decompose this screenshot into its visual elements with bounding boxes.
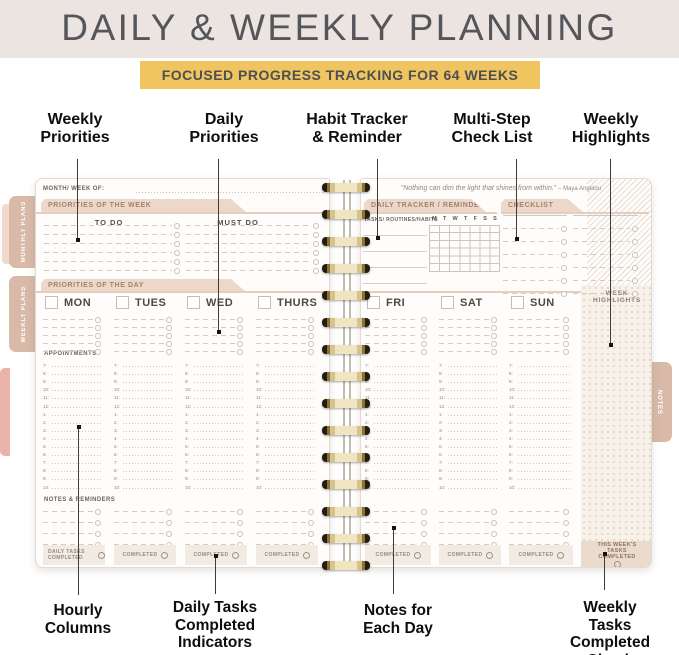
checkbox-circle-icon xyxy=(561,239,567,245)
checkbox-circle-icon xyxy=(308,341,314,347)
hour-label: 6: xyxy=(509,452,518,457)
checkbox-circle-icon xyxy=(232,552,239,559)
checkbox-circle-icon xyxy=(161,552,168,559)
week-letter: S xyxy=(483,216,487,222)
hour-row: 5: xyxy=(43,442,103,449)
hour-label: 10: xyxy=(439,485,448,490)
notes-row xyxy=(185,509,243,514)
checkbox-circle-icon xyxy=(308,325,314,331)
callout-multi-step: Multi-Step Check List xyxy=(452,111,533,147)
checkbox-circle-icon xyxy=(303,552,310,559)
day-priority-row xyxy=(114,317,172,322)
checkbox-circle-icon xyxy=(237,509,243,515)
notes-row xyxy=(439,520,497,525)
checkbox-circle-icon xyxy=(237,325,243,331)
hour-row: 9: xyxy=(509,474,571,481)
hour-label: 8: xyxy=(114,371,123,376)
hour-label: 7: xyxy=(43,363,52,368)
spiral-coil xyxy=(322,534,370,543)
spiral-binding xyxy=(322,178,370,568)
todo-row xyxy=(44,250,180,255)
hour-row: 8: xyxy=(114,466,174,473)
hour-row: 7: xyxy=(439,361,499,368)
tracker-task-line xyxy=(363,283,427,284)
tracker-task-line xyxy=(363,251,427,252)
hour-row: 10: xyxy=(439,483,499,490)
hour-label: 9: xyxy=(439,476,448,481)
daily-completed-box: DAILY TASKS COMPLETED xyxy=(43,545,105,565)
hour-row: 8: xyxy=(185,369,245,376)
hour-label: 12: xyxy=(256,404,265,409)
notes-row xyxy=(185,520,243,525)
hour-label: 7: xyxy=(43,460,52,465)
checkbox-circle-icon xyxy=(313,232,319,238)
hour-label: 7: xyxy=(509,460,518,465)
hour-label: 7: xyxy=(439,363,448,368)
checkbox-circle-icon xyxy=(308,531,314,537)
hour-label: 4: xyxy=(185,436,194,441)
hour-label: 9: xyxy=(509,379,518,384)
todo-row xyxy=(44,223,180,228)
hour-row: 3: xyxy=(114,426,174,433)
checkbox-circle-icon xyxy=(491,333,497,339)
day-priority-row xyxy=(256,341,314,346)
pointer-daily-priorities xyxy=(218,159,219,332)
hour-label: 7: xyxy=(114,363,123,368)
callout-weekly-highlights: Weekly Highlights xyxy=(572,111,650,147)
day-header: FRI xyxy=(363,295,437,310)
daily-tracker-header: DAILY TRACKER / REMINDER xyxy=(364,199,486,212)
hour-row: 7: xyxy=(509,458,571,465)
hour-label: 2: xyxy=(185,420,194,425)
todo-row xyxy=(44,232,180,237)
hour-row: 8: xyxy=(256,369,316,376)
day-priority-row xyxy=(365,349,427,354)
hour-row: 5: xyxy=(509,442,571,449)
checklist-row xyxy=(573,291,638,296)
checkbox-circle-icon xyxy=(237,333,243,339)
pointer-weekly-priorities xyxy=(77,159,78,240)
hour-row: 10: xyxy=(256,385,316,392)
todo-row xyxy=(186,241,319,246)
checkbox-circle-icon xyxy=(98,552,105,559)
spiral-coil xyxy=(322,264,370,273)
hour-row: 7: xyxy=(256,458,316,465)
hour-label: 7: xyxy=(185,363,194,368)
hour-label: 10: xyxy=(509,387,518,392)
callout-habit-tracker: Habit Tracker & Reminder xyxy=(306,111,407,147)
daily-completed-box: COMPLETED xyxy=(114,545,176,565)
checkbox-circle-icon xyxy=(95,325,101,331)
hour-label: 2: xyxy=(43,420,52,425)
day-name-label: SUN xyxy=(530,297,555,309)
checkbox-circle-icon xyxy=(166,341,172,347)
hour-label: 10: xyxy=(114,387,123,392)
hour-row: 8: xyxy=(439,369,499,376)
day-priority-row xyxy=(185,317,243,322)
hour-row: 2: xyxy=(509,418,571,425)
hour-row: 8: xyxy=(43,369,103,376)
hour-row: 10: xyxy=(365,385,429,392)
checkbox-circle-icon xyxy=(95,317,101,323)
completed-label: DAILY TASKS COMPLETED xyxy=(48,549,95,561)
notes-row xyxy=(114,509,172,514)
hour-row: 9: xyxy=(439,474,499,481)
hour-label: 8: xyxy=(509,468,518,473)
hour-label: 8: xyxy=(43,468,52,473)
notes-row xyxy=(43,509,101,514)
hour-row: 7: xyxy=(185,458,245,465)
checkbox-circle-icon xyxy=(632,252,638,258)
checkbox-circle-icon xyxy=(313,259,319,265)
checkbox-circle-icon xyxy=(421,349,427,355)
hour-label: 9: xyxy=(439,379,448,384)
tracker-task-line xyxy=(363,235,427,236)
checklist-row xyxy=(503,226,567,231)
tab-weekly-plans: WEEKLY PLANS xyxy=(9,276,38,352)
completed-label: COMPLETED xyxy=(194,552,229,558)
day-name-label: SAT xyxy=(460,297,483,309)
checkbox-circle-icon xyxy=(561,278,567,284)
checkbox-circle-icon xyxy=(632,226,638,232)
checkbox-circle-icon xyxy=(486,552,493,559)
day-priority-row xyxy=(256,317,314,322)
checkbox-circle-icon xyxy=(95,349,101,355)
hour-row: 6: xyxy=(365,450,429,457)
callout-notes-each-day: Notes for Each Day xyxy=(363,602,433,637)
spiral-coil xyxy=(322,561,370,570)
hour-row: 10: xyxy=(114,483,174,490)
day-header: TUES xyxy=(112,295,182,310)
checkbox-circle-icon xyxy=(237,341,243,347)
checkbox-circle-icon xyxy=(174,268,180,274)
hour-label: 5: xyxy=(185,444,194,449)
week-letter: S xyxy=(493,216,497,222)
checklist-header: CHECKLIST xyxy=(501,199,583,212)
callout-weekly-priorities: Weekly Priorities xyxy=(40,111,109,147)
spiral-coil xyxy=(322,318,370,327)
day-checkbox xyxy=(45,296,58,309)
notes-row xyxy=(439,509,497,514)
tab-weekly-plans-label: WEEKLY PLANS xyxy=(21,286,27,343)
hour-label: 7: xyxy=(114,460,123,465)
hour-label: 12: xyxy=(185,404,194,409)
hour-row: 5: xyxy=(439,442,499,449)
checkbox-circle-icon xyxy=(166,509,172,515)
spiral-coil xyxy=(322,291,370,300)
completed-label: COMPLETED xyxy=(123,552,158,558)
checkbox-circle-icon xyxy=(237,317,243,323)
hour-label: 11: xyxy=(439,395,448,400)
hour-label: 2: xyxy=(439,420,448,425)
hour-label: 6: xyxy=(43,452,52,457)
day-priority-row xyxy=(43,341,101,346)
hour-row: 8: xyxy=(365,369,429,376)
checkbox-circle-icon xyxy=(237,520,243,526)
hour-label: 9: xyxy=(43,379,52,384)
day-priority-row xyxy=(43,349,101,354)
month-week-label: MONTH/ WEEK OF: xyxy=(43,186,104,192)
hour-label: 5: xyxy=(256,444,265,449)
day-name-label: FRI xyxy=(386,297,405,309)
hour-label: 11: xyxy=(43,395,52,400)
month-week-line xyxy=(136,192,324,193)
checkbox-circle-icon xyxy=(491,531,497,537)
hour-label: 10: xyxy=(43,387,52,392)
hour-row: 9: xyxy=(256,377,316,384)
checkbox-circle-icon xyxy=(563,520,569,526)
checkbox-circle-icon xyxy=(313,268,319,274)
hour-row: 6: xyxy=(439,450,499,457)
subtitle-ribbon: FOCUSED PROGRESS TRACKING FOR 64 WEEKS xyxy=(140,61,540,89)
todo-row xyxy=(186,268,319,273)
hour-label: 3: xyxy=(43,428,52,433)
hour-label: 8: xyxy=(256,371,265,376)
pointer-multi-step xyxy=(516,159,517,239)
week-letter: T xyxy=(464,216,467,222)
hour-row: 4: xyxy=(43,434,103,441)
checklist-row xyxy=(573,265,638,270)
hour-row: 8: xyxy=(256,466,316,473)
checkbox-circle-icon xyxy=(313,241,319,247)
hour-label: 4: xyxy=(43,436,52,441)
hour-row: 12: xyxy=(509,402,571,409)
hour-row: 7: xyxy=(114,361,174,368)
checkbox-circle-icon xyxy=(166,317,172,323)
hour-label: 1: xyxy=(256,412,265,417)
checkbox-circle-icon xyxy=(561,226,567,232)
hour-row: 11: xyxy=(439,393,499,400)
product-infographic: DAILY & WEEKLY PLANNING FOCUSED PROGRESS… xyxy=(0,0,679,655)
hour-row: 9: xyxy=(365,377,429,384)
hour-label: 8: xyxy=(439,468,448,473)
hour-row: 12: xyxy=(43,402,103,409)
hour-row: 8: xyxy=(509,369,571,376)
checkbox-circle-icon xyxy=(632,239,638,245)
day-priority-row xyxy=(439,333,497,338)
hour-row: 7: xyxy=(185,361,245,368)
checkbox-circle-icon xyxy=(491,325,497,331)
hour-row: 8: xyxy=(43,466,103,473)
hour-row: 12: xyxy=(365,402,429,409)
hour-row: 1: xyxy=(509,410,571,417)
day-priority-row xyxy=(509,325,569,330)
hour-row: 3: xyxy=(43,426,103,433)
hour-row: 11: xyxy=(365,393,429,400)
pointer-notes-each-day xyxy=(393,528,394,594)
day-priority-row xyxy=(185,349,243,354)
hour-label: 8: xyxy=(256,468,265,473)
notes-row xyxy=(509,531,569,536)
hour-label: 9: xyxy=(185,476,194,481)
day-priority-row xyxy=(114,341,172,346)
hour-row: 12: xyxy=(114,402,174,409)
hour-label: 3: xyxy=(439,428,448,433)
completed-label: COMPLETED xyxy=(519,552,554,558)
checkbox-circle-icon xyxy=(166,520,172,526)
hour-row: 10: xyxy=(185,483,245,490)
hour-row: 10: xyxy=(439,385,499,392)
checkbox-circle-icon xyxy=(563,317,569,323)
checklist-row xyxy=(573,278,638,283)
week-letter: T xyxy=(443,216,446,222)
hour-label: 8: xyxy=(185,468,194,473)
checkbox-circle-icon xyxy=(95,531,101,537)
notes-row xyxy=(509,520,569,525)
hour-row: 4: xyxy=(509,434,571,441)
hour-label: 1: xyxy=(509,412,518,417)
tasks-routines-label: TASKS/ ROUTINES/HABITS xyxy=(364,217,438,223)
todo-row xyxy=(186,250,319,255)
day-priority-row xyxy=(439,317,497,322)
week-letter: W xyxy=(453,216,458,222)
day-priority-row xyxy=(509,341,569,346)
hour-label: 10: xyxy=(439,387,448,392)
checklist-row xyxy=(573,215,638,216)
hour-row: 2: xyxy=(365,418,429,425)
day-priority-row xyxy=(114,333,172,338)
quote-author: – Maya Angelou xyxy=(558,186,601,192)
checklist-row xyxy=(573,239,638,244)
hour-label: 9: xyxy=(43,476,52,481)
day-header: SUN xyxy=(507,295,579,310)
hour-label: 3: xyxy=(114,428,123,433)
priorities-week-header: PRIORITIES OF THE WEEK xyxy=(41,199,246,212)
hour-label: 8: xyxy=(439,371,448,376)
hour-row: 9: xyxy=(43,377,103,384)
hour-row: 10: xyxy=(365,483,429,490)
hour-label: 5: xyxy=(114,444,123,449)
hour-row: 8: xyxy=(365,466,429,473)
notes-row xyxy=(439,531,497,536)
hour-row: 5: xyxy=(365,442,429,449)
inspirational-quote: “Nothing can dim the light that shines f… xyxy=(381,185,621,192)
notes-row xyxy=(256,520,314,525)
hour-row: 3: xyxy=(509,426,571,433)
hour-label: 7: xyxy=(256,363,265,368)
hour-label: 9: xyxy=(256,476,265,481)
day-header: SAT xyxy=(437,295,507,310)
pointer-daily-tasks-completed xyxy=(215,556,216,594)
hour-label: 5: xyxy=(439,444,448,449)
hour-row: 11: xyxy=(509,393,571,400)
checkbox-circle-icon xyxy=(174,250,180,256)
checklist-row xyxy=(503,265,567,270)
hour-row: 9: xyxy=(256,474,316,481)
planner-right-page: “Nothing can dim the light that shines f… xyxy=(360,178,652,568)
hour-label: 9: xyxy=(114,476,123,481)
tab-monthly-plans-label: MONTHLY PLANS xyxy=(21,201,27,262)
hour-row: 2: xyxy=(256,418,316,425)
hour-label: 6: xyxy=(114,452,123,457)
hour-row: 7: xyxy=(439,458,499,465)
todo-row xyxy=(186,259,319,264)
checkbox-circle-icon xyxy=(563,341,569,347)
checkbox-circle-icon xyxy=(174,223,180,229)
hour-label: 10: xyxy=(509,485,518,490)
checkbox-circle-icon xyxy=(313,250,319,256)
hour-row: 4: xyxy=(365,434,429,441)
header-underline xyxy=(36,212,330,214)
todo-row xyxy=(186,223,319,228)
notes-reminders-label: NOTES & REMINDERS xyxy=(44,497,115,503)
hour-label: 7: xyxy=(509,363,518,368)
spiral-coil xyxy=(322,453,370,462)
day-priority-row xyxy=(365,325,427,330)
day-checkbox xyxy=(187,296,200,309)
hour-row: 12: xyxy=(185,402,245,409)
hour-row: 2: xyxy=(185,418,245,425)
hour-label: 1: xyxy=(185,412,194,417)
day-header: THURS xyxy=(254,295,324,310)
notes-row xyxy=(365,531,427,536)
day-name-label: THURS xyxy=(277,297,317,309)
hour-label: 1: xyxy=(439,412,448,417)
hour-row: 4: xyxy=(439,434,499,441)
pointer-hourly-columns xyxy=(78,427,79,595)
hour-row: 9: xyxy=(509,377,571,384)
checkbox-circle-icon xyxy=(491,317,497,323)
checkbox-circle-icon xyxy=(421,509,427,515)
hour-label: 12: xyxy=(43,404,52,409)
callout-daily-tasks-completed: Daily Tasks Completed Indicators xyxy=(173,599,257,652)
hour-label: 3: xyxy=(256,428,265,433)
checkbox-circle-icon xyxy=(563,509,569,515)
spiral-coil xyxy=(322,426,370,435)
checkbox-circle-icon xyxy=(563,531,569,537)
day-priority-row xyxy=(185,341,243,346)
day-header: MON xyxy=(41,295,111,310)
checkbox-circle-icon xyxy=(414,552,421,559)
hour-row: 1: xyxy=(185,410,245,417)
notes-row xyxy=(365,520,427,525)
week-highlights-column xyxy=(581,285,652,568)
checkbox-circle-icon xyxy=(166,333,172,339)
hour-row: 10: xyxy=(509,385,571,392)
day-priority-row xyxy=(365,317,427,322)
checkbox-circle-icon xyxy=(308,509,314,515)
day-priority-row xyxy=(185,333,243,338)
day-priority-row xyxy=(256,349,314,354)
checklist-row xyxy=(503,239,567,244)
hour-row: 11: xyxy=(114,393,174,400)
hour-label: 8: xyxy=(509,371,518,376)
checkbox-circle-icon xyxy=(237,531,243,537)
hour-row: 10: xyxy=(509,483,571,490)
todo-row xyxy=(186,232,319,237)
checklist-row xyxy=(503,278,567,283)
checkbox-circle-icon xyxy=(237,349,243,355)
hour-row: 6: xyxy=(185,450,245,457)
hour-label: 10: xyxy=(43,485,52,490)
hour-label: 9: xyxy=(509,476,518,481)
checkbox-circle-icon xyxy=(95,341,101,347)
hour-row: 10: xyxy=(114,385,174,392)
notes-row xyxy=(256,509,314,514)
hour-label: 3: xyxy=(509,428,518,433)
checkbox-circle-icon xyxy=(491,349,497,355)
hour-row: 10: xyxy=(43,483,103,490)
notes-row xyxy=(509,509,569,514)
day-checkbox xyxy=(258,296,271,309)
hour-label: 7: xyxy=(185,460,194,465)
checkbox-circle-icon xyxy=(308,317,314,323)
hour-label: 9: xyxy=(114,379,123,384)
hour-label: 8: xyxy=(43,371,52,376)
hour-row: 1: xyxy=(439,410,499,417)
hour-row: 9: xyxy=(114,377,174,384)
notes-row xyxy=(114,531,172,536)
